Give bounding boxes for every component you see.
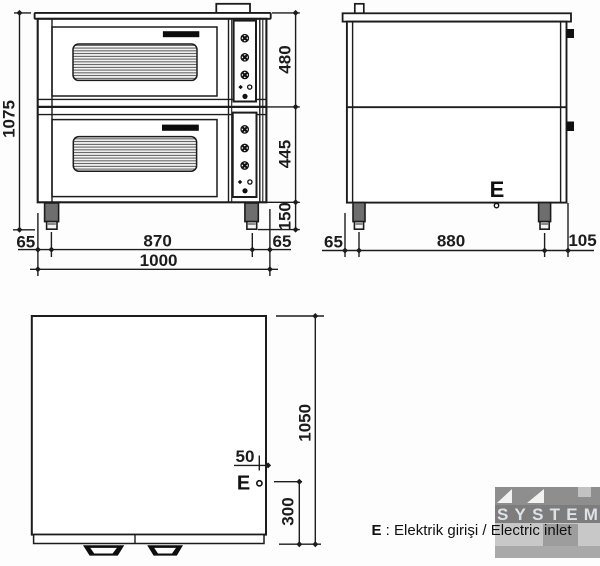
svg-text:880: 880 <box>437 232 465 251</box>
svg-text:300: 300 <box>278 497 297 525</box>
svg-text:65: 65 <box>324 233 343 252</box>
svg-text:105: 105 <box>568 231 596 250</box>
svg-text:E : Elektrik girişi / Electric: E : Elektrik girişi / Electric inlet <box>372 522 573 539</box>
svg-text:1000: 1000 <box>140 251 178 270</box>
svg-text:480: 480 <box>276 45 295 73</box>
svg-text:E: E <box>490 177 505 202</box>
svg-text:1050: 1050 <box>296 404 315 442</box>
svg-text:E: E <box>237 473 250 495</box>
svg-text:65: 65 <box>273 232 292 251</box>
svg-text:150: 150 <box>276 202 295 230</box>
svg-text:50: 50 <box>236 447 255 466</box>
svg-text:1075: 1075 <box>0 100 18 138</box>
svg-text:870: 870 <box>143 232 171 251</box>
svg-text:65: 65 <box>16 233 35 252</box>
svg-text:445: 445 <box>276 140 295 168</box>
